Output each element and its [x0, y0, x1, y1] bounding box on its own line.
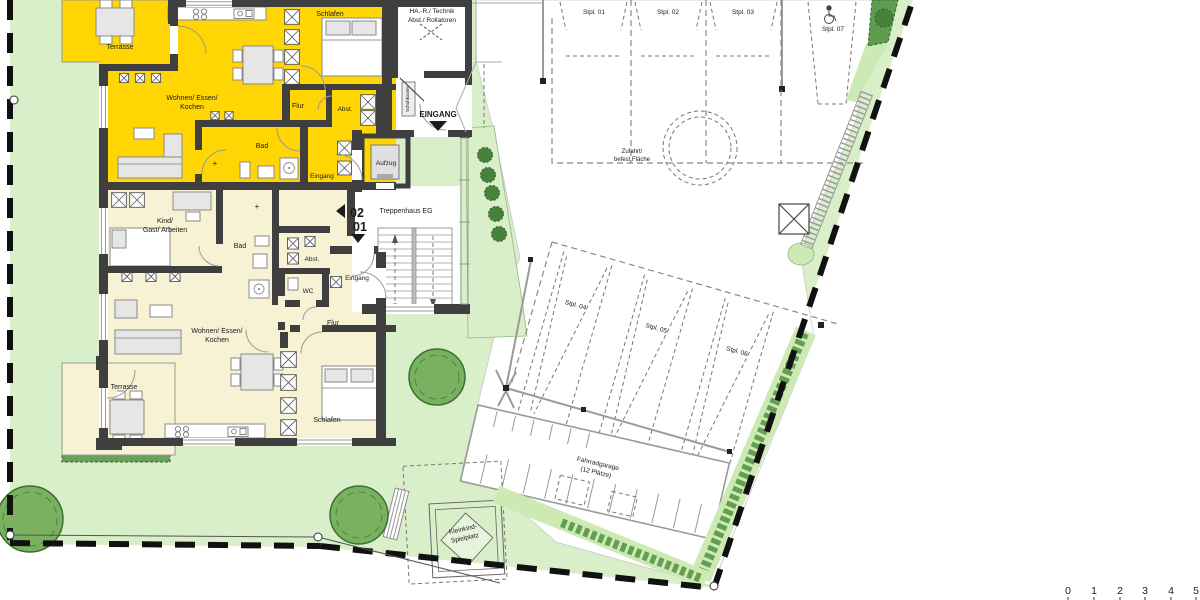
stall-label: Stpl. 03	[732, 9, 754, 16]
label-kind: Kind/	[157, 218, 173, 225]
scale-5: 5	[1193, 585, 1199, 597]
scale-3: 3	[1142, 585, 1148, 597]
label-wc: WC	[303, 288, 314, 295]
label-eingang-main: EINGANG	[419, 110, 456, 119]
dining-table-lower	[241, 354, 273, 390]
sofa-lower	[115, 330, 181, 354]
svg-text:Gast/ Arbeiten: Gast/ Arbeiten	[143, 227, 187, 234]
label-terrasse-upper: Terrasse	[107, 44, 134, 51]
label-schlafen-upper: Schlafen	[316, 11, 343, 18]
scale-1: 1	[1091, 585, 1097, 597]
stall-label: Stpl. 01	[583, 9, 605, 16]
label-aufzug: Aufzug	[376, 160, 397, 167]
site-plan: Stpl. 01 Stpl. 02 Stpl. 03 Stpl. 07 Zufa…	[0, 0, 1200, 600]
sofa-upper	[118, 157, 182, 178]
label-technik: HA.-R./ Technik	[409, 8, 455, 15]
label-abst-lower: Abst.	[305, 256, 320, 263]
label-terrasse-lower: Terrasse	[111, 384, 138, 391]
dining-table	[243, 46, 273, 84]
unit-02-marker: 02	[350, 206, 364, 220]
post	[540, 78, 546, 84]
svg-text:Kochen: Kochen	[205, 337, 229, 344]
scale-2: 2	[1117, 585, 1123, 597]
label-abst-upper: Abst.	[338, 106, 353, 113]
svg-text:Kochen: Kochen	[180, 104, 204, 111]
label-schlafen-lower: Schlafen	[313, 417, 340, 424]
svg-text:befest Fläche: befest Fläche	[614, 157, 651, 163]
green-island	[788, 243, 814, 265]
shoe-cabinet-label: Schuhkasten	[405, 86, 410, 113]
label-wohnen-lower: Wohnen/ Essen/	[191, 328, 242, 335]
stall-label: Stpl. 02	[657, 9, 679, 16]
label-wohnen-upper: Wohnen/ Essen/	[166, 95, 217, 102]
floor-plan-canvas: Stpl. 01 Stpl. 02 Stpl. 03 Stpl. 07 Zufa…	[0, 0, 1200, 600]
label-flur-upper: Flur	[292, 103, 305, 110]
zufahrt-label: Zufahrt/	[622, 149, 643, 155]
utility-box	[779, 204, 809, 234]
label-eingang-upper: Eingang	[310, 173, 334, 180]
post	[779, 86, 785, 92]
scale-0: 0	[1065, 585, 1071, 597]
bush	[875, 9, 893, 27]
label-eingang-lower: Eingang	[345, 275, 369, 282]
svg-text:+: +	[213, 159, 218, 168]
scale-4: 4	[1168, 585, 1174, 597]
terrace-table-lower	[110, 400, 144, 434]
label-treppenhaus: Treppenhaus EG	[379, 208, 432, 215]
label-bad-lower: Bad	[234, 243, 247, 250]
label-flur-lower: Flur	[327, 320, 340, 327]
unit-01-marker: 01	[353, 220, 367, 234]
stall-label: Stpl. 07	[822, 26, 844, 33]
svg-text:Abst./ Rollatoren: Abst./ Rollatoren	[408, 17, 456, 24]
label-bad-upper: Bad	[256, 143, 269, 150]
desk	[173, 192, 211, 210]
svg-text:+: +	[255, 202, 260, 211]
